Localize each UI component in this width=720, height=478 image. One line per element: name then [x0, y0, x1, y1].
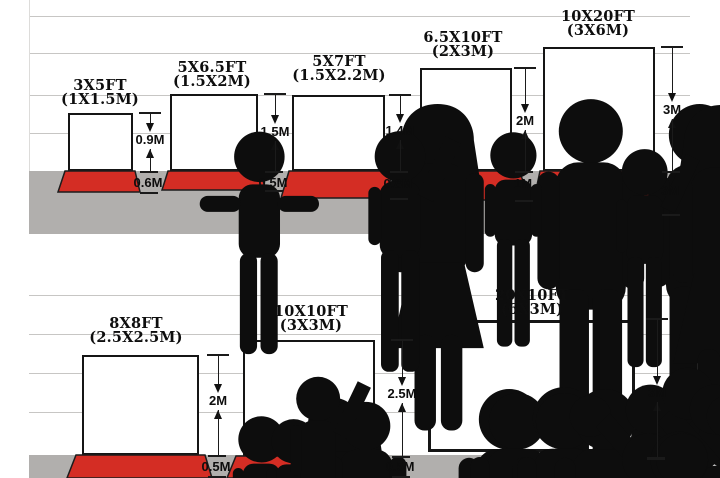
- dim-floor-dash: [208, 455, 226, 457]
- panel-title-20x10: 20X10FT(6X3M): [495, 289, 569, 317]
- dim-arrow-down: [398, 377, 406, 386]
- size-label-m: (6X3M): [495, 303, 569, 317]
- dim-height-label: 2.5M: [388, 387, 417, 401]
- dim-height-label: 1.4M: [386, 124, 415, 138]
- dim-floor-dash: [392, 456, 410, 458]
- dim-depth-label: 0.5M: [259, 176, 288, 190]
- size-label-m: (1.5X2M): [173, 75, 251, 89]
- dim-floor-dash: [140, 171, 158, 173]
- dim-lower-line: [150, 149, 152, 171]
- dim-arrow-down: [521, 104, 529, 113]
- dim-lower-line: [657, 402, 659, 457]
- dim-depth-label: 3M: [661, 184, 679, 198]
- size-label-m: (2X3M): [423, 45, 502, 59]
- dim-depth-dash: [515, 200, 533, 202]
- panel-title-8x8: 8X8FT(2.5X2.5M): [89, 317, 182, 345]
- size-comparison-diagram: 3X5FT(1X1.5M)0.9M0.6M5X6.5FT(1.5X2M)1.5M…: [0, 0, 720, 478]
- dim-depth-label: 1M: [514, 177, 532, 191]
- dim-arrow-down: [396, 114, 404, 123]
- dim-lower-line: [672, 119, 674, 171]
- dim-height-label: 3M: [648, 386, 666, 400]
- dim-height-label: 2M: [516, 114, 534, 128]
- dim-depth-label: 0.5M: [202, 460, 231, 474]
- dim-depth-label: 0.8M: [384, 177, 413, 191]
- size-label-m: (1.5X2.2M): [292, 69, 385, 83]
- red-carpet-8x8: [67, 455, 212, 478]
- dim-lower-line: [400, 140, 402, 171]
- size-label-m: (2.5X2.5M): [89, 331, 182, 345]
- dim-lower-line: [525, 130, 527, 171]
- dim-lower-line: [275, 141, 277, 171]
- dim-arrow-down: [271, 115, 279, 124]
- dim-arrow-down: [146, 123, 154, 132]
- dim-arrow-down: [668, 93, 676, 102]
- panel-title-5x6_5: 5X6.5FT(1.5X2M): [173, 61, 251, 89]
- panel-title-3x5: 3X5FT(1X1.5M): [61, 79, 139, 107]
- size-label-m: (3X3M): [274, 319, 348, 333]
- red-carpet-3x5: [58, 171, 140, 192]
- dim-upper-line: [657, 319, 659, 383]
- dim-lower-line: [402, 403, 404, 456]
- dim-floor-dash: [515, 171, 533, 173]
- dim-floor-dash: [390, 171, 408, 173]
- size-label-m: (3X6M): [561, 24, 635, 38]
- panel-title-6_5x10: 6.5X10FT(2X3M): [423, 31, 502, 59]
- dim-lower-line: [218, 410, 220, 455]
- dim-depth-label: 0.6M: [134, 176, 163, 190]
- dim-depth-dash: [140, 192, 158, 194]
- dim-height-label: 1.5M: [261, 125, 290, 139]
- panel-title-10x10: 10X10FT(3X3M): [274, 305, 348, 333]
- dim-arrow-down: [214, 384, 222, 393]
- size-label-m: (1X1.5M): [61, 93, 139, 107]
- dim-depth-dash: [647, 458, 665, 460]
- dim-arrow-down: [653, 376, 661, 385]
- dim-depth-dash: [662, 214, 680, 216]
- dim-depth-label: 0.5M: [386, 460, 415, 474]
- dim-height-label: 2M: [209, 394, 227, 408]
- dim-floor-dash: [662, 171, 680, 173]
- dim-depth-dash: [265, 190, 283, 192]
- dim-height-label: 3M: [663, 103, 681, 117]
- panel-title-5x7: 5X7FT(1.5X2.2M): [292, 55, 385, 83]
- dim-height-label: 0.9M: [136, 133, 165, 147]
- dim-depth-dash: [390, 198, 408, 200]
- dim-floor-dash: [265, 171, 283, 173]
- panel-title-10x20: 10X20FT(3X6M): [561, 10, 635, 38]
